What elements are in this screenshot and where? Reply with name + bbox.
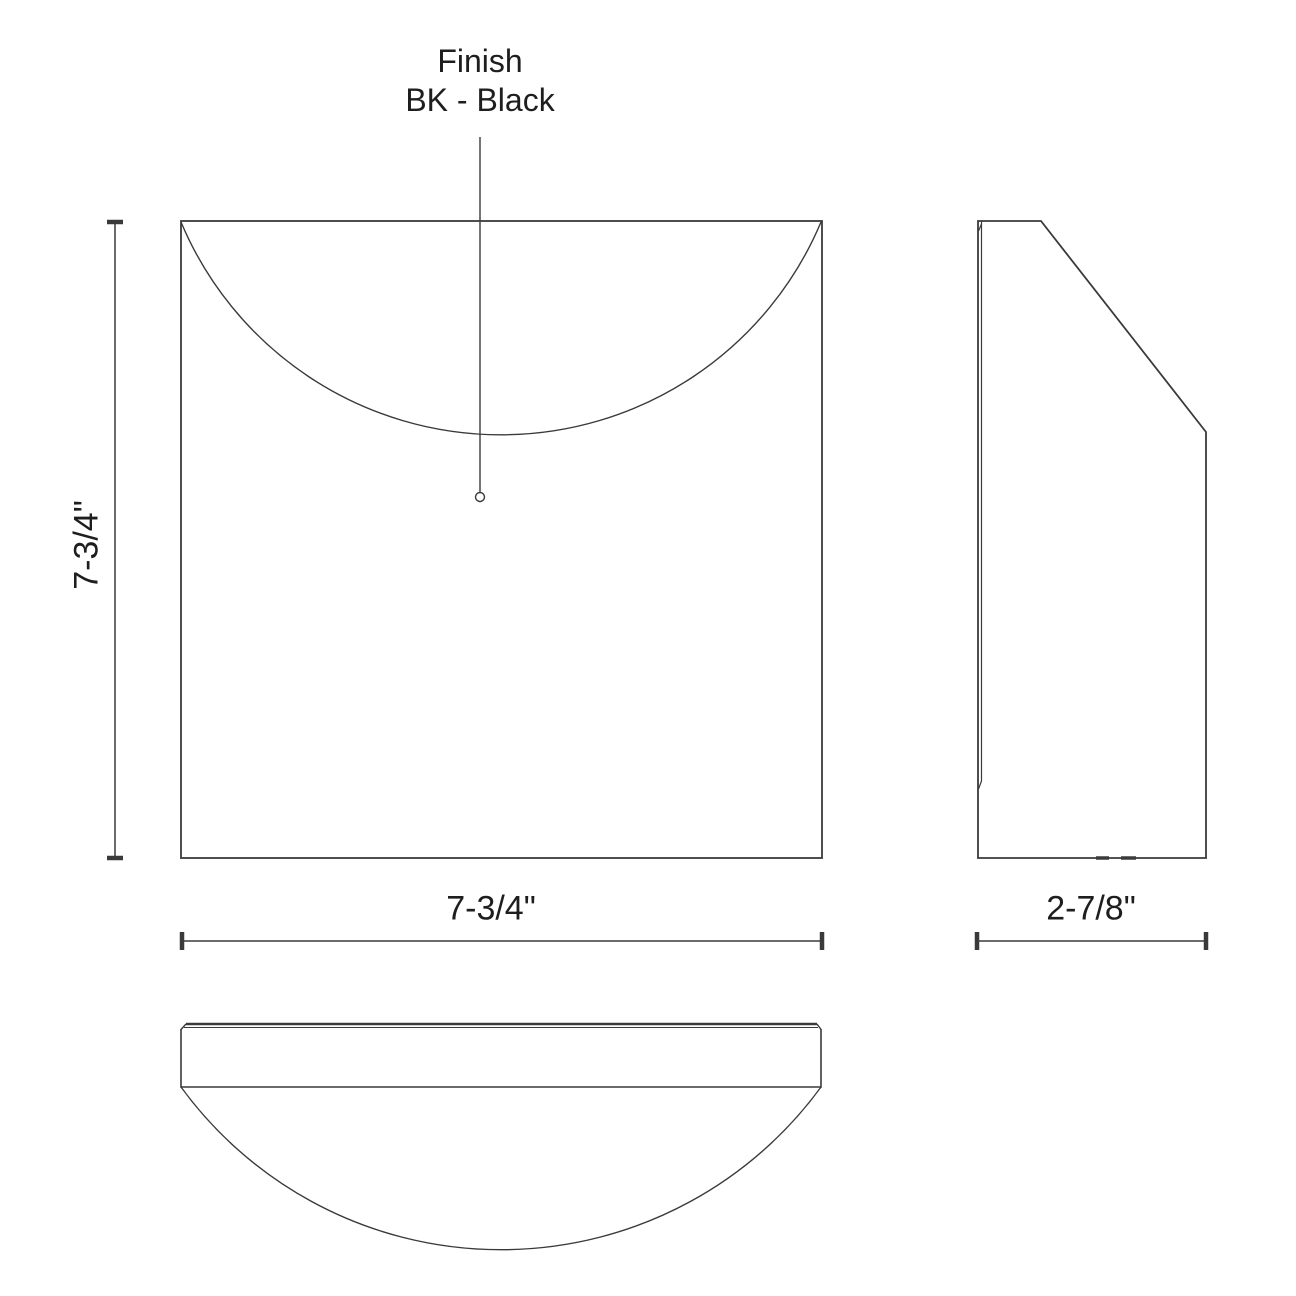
finish-label: Finish BK - Black [405,42,554,120]
depth-dimension [977,932,1206,950]
bottom-view-body-outline [181,1029,821,1087]
height-dimension [107,222,123,858]
depth-dimension-label: 2-7/8" [1046,890,1136,929]
front-view-shade-arc [181,222,821,435]
finish-label-title: Finish [405,42,554,81]
bottom-view [181,1024,821,1250]
drawing-linework [0,0,1296,1296]
width-dimension-label: 7-3/4" [446,890,536,929]
bottom-view-shade-arc [181,1087,821,1250]
dimensional-drawing-canvas: Finish BK - Black 7-3/4" 7-3/4" 2-7/8" [0,0,1296,1296]
finish-label-value: BK - Black [405,81,554,120]
side-view-outline [978,221,1206,858]
side-view-backplate-line [979,221,982,789]
side-view [978,221,1206,858]
bottom-view-right-chamfer [817,1024,821,1030]
front-view-outline [181,221,822,858]
height-dimension-label: 7-3/4" [68,500,107,590]
finish-leader-dot [476,493,485,502]
width-dimension [182,932,822,950]
front-view [181,137,822,858]
bottom-view-left-chamfer [181,1024,186,1030]
